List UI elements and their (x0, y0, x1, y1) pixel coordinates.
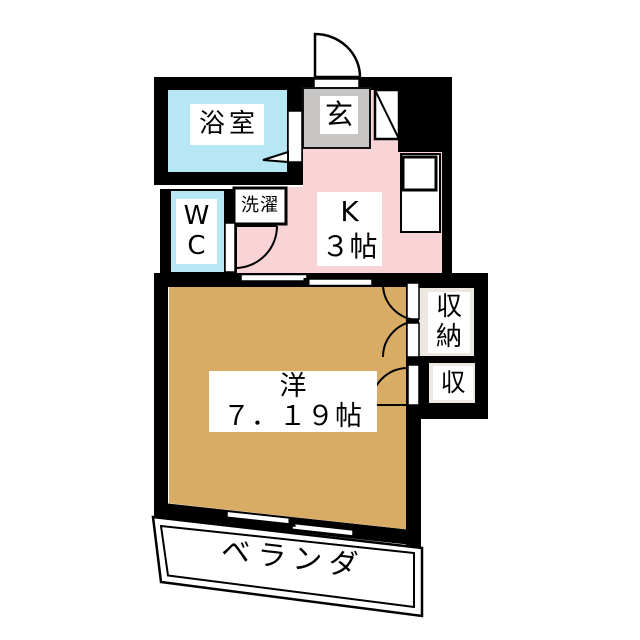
western-room-label: 洋 ７．１９帖 (209, 371, 377, 432)
bathroom-door-opening (288, 111, 302, 162)
wc-door-opening (225, 223, 235, 272)
western-room-size: ７．１９帖 (223, 402, 363, 432)
sliding-door-panel (241, 275, 307, 282)
wall-right-kitchen (442, 77, 452, 277)
closet-door-opening (407, 323, 419, 357)
sliding-door-joint (304, 278, 310, 287)
bathroom-label: 浴室 (190, 104, 264, 145)
wc-label-char: W (184, 202, 210, 232)
wall-right-room (406, 418, 421, 548)
kitchen-label: K ３帖 (317, 192, 382, 266)
closet-small-door-opening (408, 365, 419, 405)
wc-label: W C (176, 199, 217, 264)
laundry-label: 洗濯 (236, 191, 284, 221)
western-room-name: 洋 (280, 372, 307, 402)
sliding-door-panel (307, 279, 372, 286)
kitchen-label-name: K (340, 194, 358, 229)
window-joint (289, 519, 296, 528)
wall-left (154, 273, 168, 517)
kitchen-label-size: ３帖 (321, 229, 377, 264)
closet-label-char: 納 (436, 323, 462, 352)
entrance-door-icon (315, 34, 360, 77)
wc-label-char: C (187, 232, 205, 262)
sink-icon (403, 157, 436, 190)
entrance-label: 玄 (320, 96, 358, 134)
floor-plan: 浴室 玄 W C 洗濯 K ３帖 洋 ７．１９帖 収 納 収 ベランダ (0, 0, 640, 640)
closet-label: 収 納 (428, 292, 470, 353)
closet-door-opening (407, 283, 419, 319)
closet-label-char: 収 (436, 293, 462, 322)
closet-small-label: 収 (433, 366, 473, 400)
